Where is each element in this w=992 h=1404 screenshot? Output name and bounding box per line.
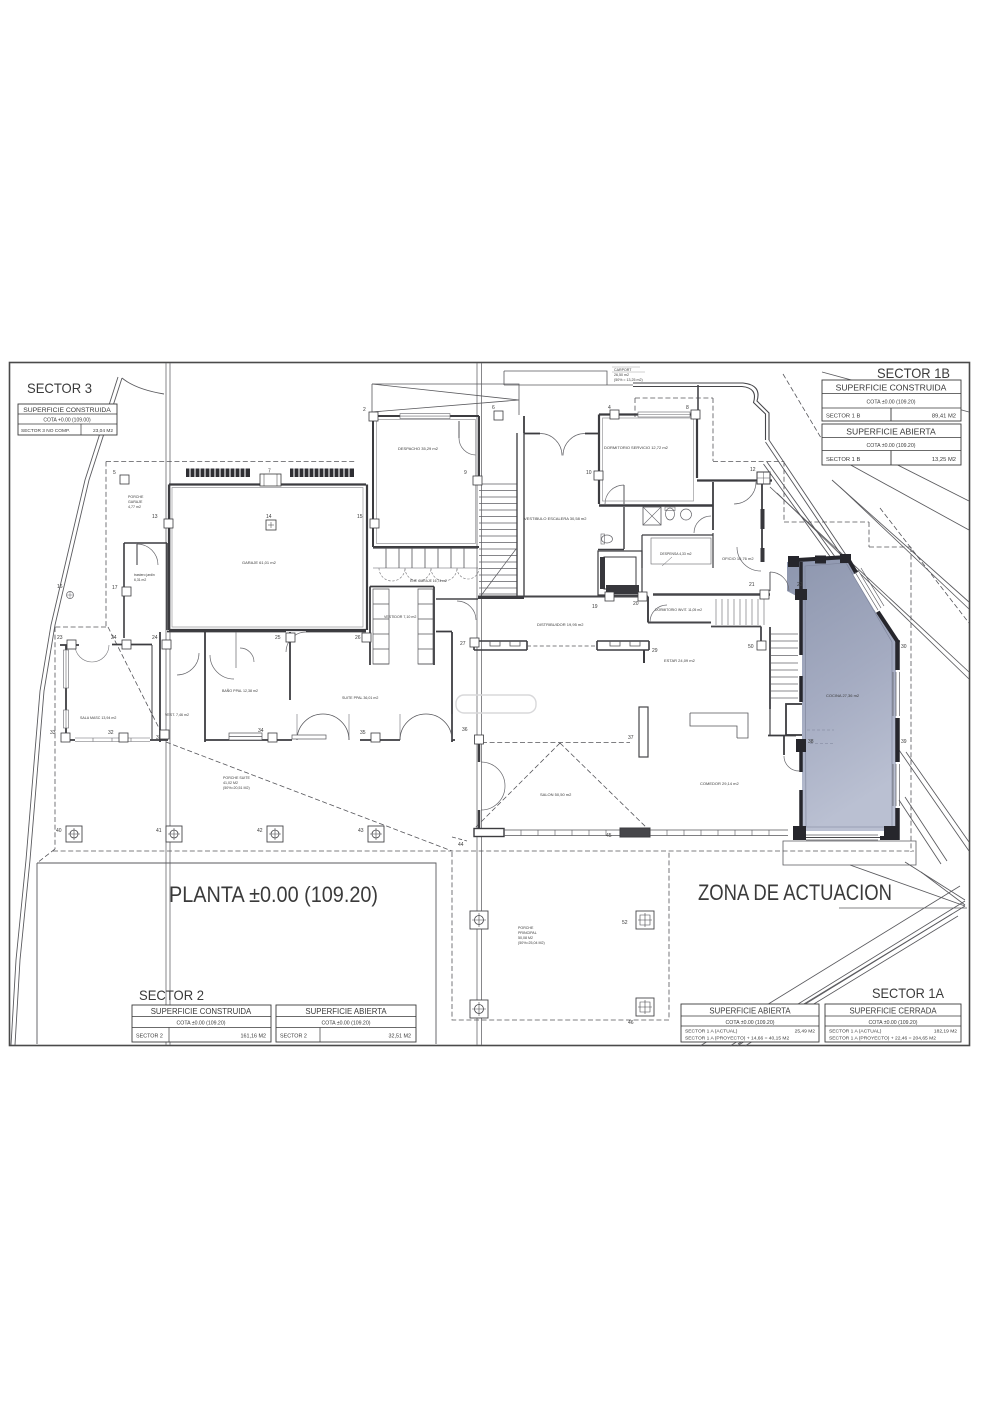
svg-text:35: 35 (360, 730, 366, 736)
svg-text:COTA ±0.00 (109.20): COTA ±0.00 (109.20) (177, 1021, 226, 1027)
svg-text:SECTOR 2: SECTOR 2 (136, 1034, 163, 1040)
svg-text:50,08 M2: 50,08 M2 (518, 936, 533, 940)
svg-text:34: 34 (258, 728, 264, 734)
svg-text:ZONA DE ACTUACION: ZONA DE ACTUACION (698, 880, 892, 905)
svg-text:SECTOR 1A: SECTOR 1A (872, 985, 945, 1001)
svg-text:161,16 M2: 161,16 M2 (241, 1034, 266, 1040)
svg-text:SUPERFICIE CONSTRUIDA: SUPERFICIE CONSTRUIDA (836, 383, 947, 393)
svg-text:16: 16 (57, 584, 63, 590)
svg-text:SECTOR 3 NO COMP.: SECTOR 3 NO COMP. (21, 428, 70, 434)
svg-text:SECTOR 1 A (ACTUAL): SECTOR 1 A (ACTUAL) (829, 1029, 882, 1035)
svg-text:SECTOR 1 A (PROYECTO) + 14,66: SECTOR 1 A (PROYECTO) + 14,66 = 40,15 M2 (685, 1036, 789, 1042)
svg-text:41: 41 (156, 828, 162, 834)
svg-text:ENT. GARAJE 16,74 m2: ENT. GARAJE 16,74 m2 (410, 579, 447, 583)
svg-text:5: 5 (113, 470, 116, 476)
svg-text:COTA ±0.00 (109.20): COTA ±0.00 (109.20) (867, 443, 916, 449)
svg-text:89,41 M2: 89,41 M2 (932, 414, 956, 420)
svg-text:40: 40 (56, 828, 62, 834)
svg-text:SUPERFICIE CONSTRUIDA: SUPERFICIE CONSTRUIDA (151, 1007, 252, 1016)
svg-text:13,25 M2: 13,25 M2 (932, 457, 956, 463)
svg-text:6: 6 (492, 405, 495, 411)
svg-text:41,02 M2: 41,02 M2 (223, 781, 238, 785)
svg-text:GARAJE: GARAJE (128, 500, 143, 504)
svg-text:DORMITORIO SERVICIO 12,72 m2: DORMITORIO SERVICIO 12,72 m2 (604, 445, 669, 450)
svg-text:25,49 M2: 25,49 M2 (795, 1029, 816, 1035)
svg-text:10: 10 (586, 470, 592, 476)
svg-text:46: 46 (628, 1020, 634, 1026)
svg-text:22: 22 (797, 582, 803, 588)
svg-text:25: 25 (275, 635, 281, 641)
svg-text:PORCHE SUITE: PORCHE SUITE (223, 776, 251, 780)
svg-text:SECTOR 1 A (PROYECTO) + 22,46: SECTOR 1 A (PROYECTO) + 22,46 = 204,65 M… (829, 1036, 936, 1042)
svg-text:6,31 m2: 6,31 m2 (134, 578, 146, 582)
svg-text:PRINCIPAL: PRINCIPAL (518, 931, 537, 935)
svg-text:33: 33 (50, 730, 56, 736)
svg-text:SECTOR 1 B: SECTOR 1 B (826, 414, 860, 420)
svg-text:DISTRIBUIDOR 19,95 m2: DISTRIBUIDOR 19,95 m2 (537, 622, 584, 627)
svg-text:OFICIO 16,76 m2: OFICIO 16,76 m2 (722, 556, 754, 561)
svg-text:COTA +0.00 (109.00): COTA +0.00 (109.00) (43, 418, 91, 424)
svg-text:trastero jardin: trastero jardin (134, 573, 155, 577)
svg-text:(50%=20,51 M2): (50%=20,51 M2) (223, 786, 250, 790)
svg-text:SUPERFICIE CERRADA: SUPERFICIE CERRADA (849, 1007, 937, 1016)
svg-text:COMEDOR 29,14 m2: COMEDOR 29,14 m2 (700, 781, 739, 786)
svg-text:39: 39 (901, 739, 907, 745)
svg-text:COTA ±0.00 (109.20): COTA ±0.00 (109.20) (726, 1020, 775, 1026)
svg-text:8: 8 (686, 405, 689, 411)
svg-text:PORCHE: PORCHE (128, 495, 144, 499)
svg-text:44: 44 (458, 842, 464, 848)
svg-text:42: 42 (257, 828, 263, 834)
svg-text:SALON 50,50 m2: SALON 50,50 m2 (540, 792, 572, 797)
svg-text:36: 36 (462, 727, 468, 733)
svg-text:DESPENSA 4,33 m2: DESPENSA 4,33 m2 (660, 552, 692, 556)
svg-text:45: 45 (606, 833, 612, 839)
svg-text:SECTOR 3: SECTOR 3 (27, 380, 92, 396)
svg-text:4,77 m2: 4,77 m2 (128, 505, 141, 509)
svg-text:CARPORT: CARPORT (614, 368, 632, 372)
svg-text:24: 24 (152, 635, 158, 641)
svg-text:PORCHE: PORCHE (518, 926, 534, 930)
svg-text:29: 29 (652, 648, 658, 654)
svg-text:182,19 M2: 182,19 M2 (934, 1029, 957, 1035)
svg-text:32: 32 (108, 730, 114, 736)
svg-text:COTA ±0.00 (109.20): COTA ±0.00 (109.20) (867, 400, 916, 406)
svg-text:38: 38 (808, 739, 814, 745)
svg-text:7: 7 (268, 469, 271, 475)
svg-text:DESPACHO 35,29 m2: DESPACHO 35,29 m2 (398, 446, 439, 451)
svg-text:SECTOR 1 B: SECTOR 1 B (826, 457, 860, 463)
svg-text:VEST. 7,46 m2: VEST. 7,46 m2 (165, 713, 189, 717)
svg-text:19: 19 (592, 604, 598, 610)
svg-text:SUPERFICIE ABIERTA: SUPERFICIE ABIERTA (709, 1007, 791, 1016)
svg-text:50: 50 (748, 644, 754, 650)
svg-text:VESTIBULO ESCALERA 30,58 m2: VESTIBULO ESCALERA 30,58 m2 (524, 516, 587, 521)
svg-text:PLANTA ±0.00 (109.20): PLANTA ±0.00 (109.20) (169, 882, 378, 907)
svg-text:SECTOR 1B: SECTOR 1B (877, 365, 950, 381)
svg-text:24: 24 (111, 635, 117, 641)
svg-text:SECTOR 1 A (ACTUAL): SECTOR 1 A (ACTUAL) (685, 1029, 738, 1035)
svg-text:52: 52 (622, 920, 628, 926)
svg-text:GARAJE 61,01 m2: GARAJE 61,01 m2 (242, 560, 277, 565)
svg-text:COTA ±0.00 (109.20): COTA ±0.00 (109.20) (869, 1020, 918, 1026)
svg-text:BAÑO PPAL 12,38 m2: BAÑO PPAL 12,38 m2 (222, 688, 258, 693)
svg-text:(50% = 13,25 m2): (50% = 13,25 m2) (614, 378, 643, 382)
svg-text:21: 21 (749, 582, 755, 588)
svg-text:12: 12 (750, 467, 756, 473)
svg-text:26: 26 (355, 635, 361, 641)
svg-text:2: 2 (363, 407, 366, 413)
svg-text:13: 13 (152, 514, 158, 520)
svg-text:9: 9 (464, 470, 467, 476)
svg-text:SUPERFICIE ABIERTA: SUPERFICIE ABIERTA (305, 1007, 387, 1016)
svg-text:32,51 M2: 32,51 M2 (389, 1034, 411, 1040)
svg-text:27: 27 (460, 641, 466, 647)
svg-text:COTA ±0.00 (109.20): COTA ±0.00 (109.20) (322, 1021, 371, 1027)
svg-text:43: 43 (358, 828, 364, 834)
svg-text:SUPERFICIE ABIERTA: SUPERFICIE ABIERTA (846, 427, 936, 437)
svg-text:SUPERFICIE CONSTRUIDA: SUPERFICIE CONSTRUIDA (23, 407, 111, 414)
svg-text:SECTOR 2: SECTOR 2 (280, 1034, 307, 1040)
svg-text:SECTOR 2: SECTOR 2 (139, 987, 204, 1003)
svg-text:26,50 m2: 26,50 m2 (614, 373, 629, 377)
svg-text:37: 37 (628, 735, 634, 741)
svg-text:(50%=25,04 M2): (50%=25,04 M2) (518, 941, 545, 945)
svg-text:15: 15 (357, 514, 363, 520)
svg-text:ESTAR 24,09 m2: ESTAR 24,09 m2 (664, 658, 696, 663)
svg-text:SUITE PPAL 36,01 m2: SUITE PPAL 36,01 m2 (342, 696, 378, 700)
svg-text:DORMITORIO INVIT. 11,05 m2: DORMITORIO INVIT. 11,05 m2 (655, 608, 702, 612)
svg-text:SALA MASC 13,94 m2: SALA MASC 13,94 m2 (80, 716, 116, 720)
svg-text:23,04 M2: 23,04 M2 (93, 428, 113, 434)
svg-text:20: 20 (633, 601, 639, 607)
svg-text:17: 17 (112, 585, 118, 591)
svg-text:23: 23 (57, 635, 63, 641)
svg-text:COCINA 27,36 m2: COCINA 27,36 m2 (826, 693, 860, 698)
svg-text:14: 14 (266, 514, 272, 520)
svg-text:30: 30 (901, 644, 907, 650)
